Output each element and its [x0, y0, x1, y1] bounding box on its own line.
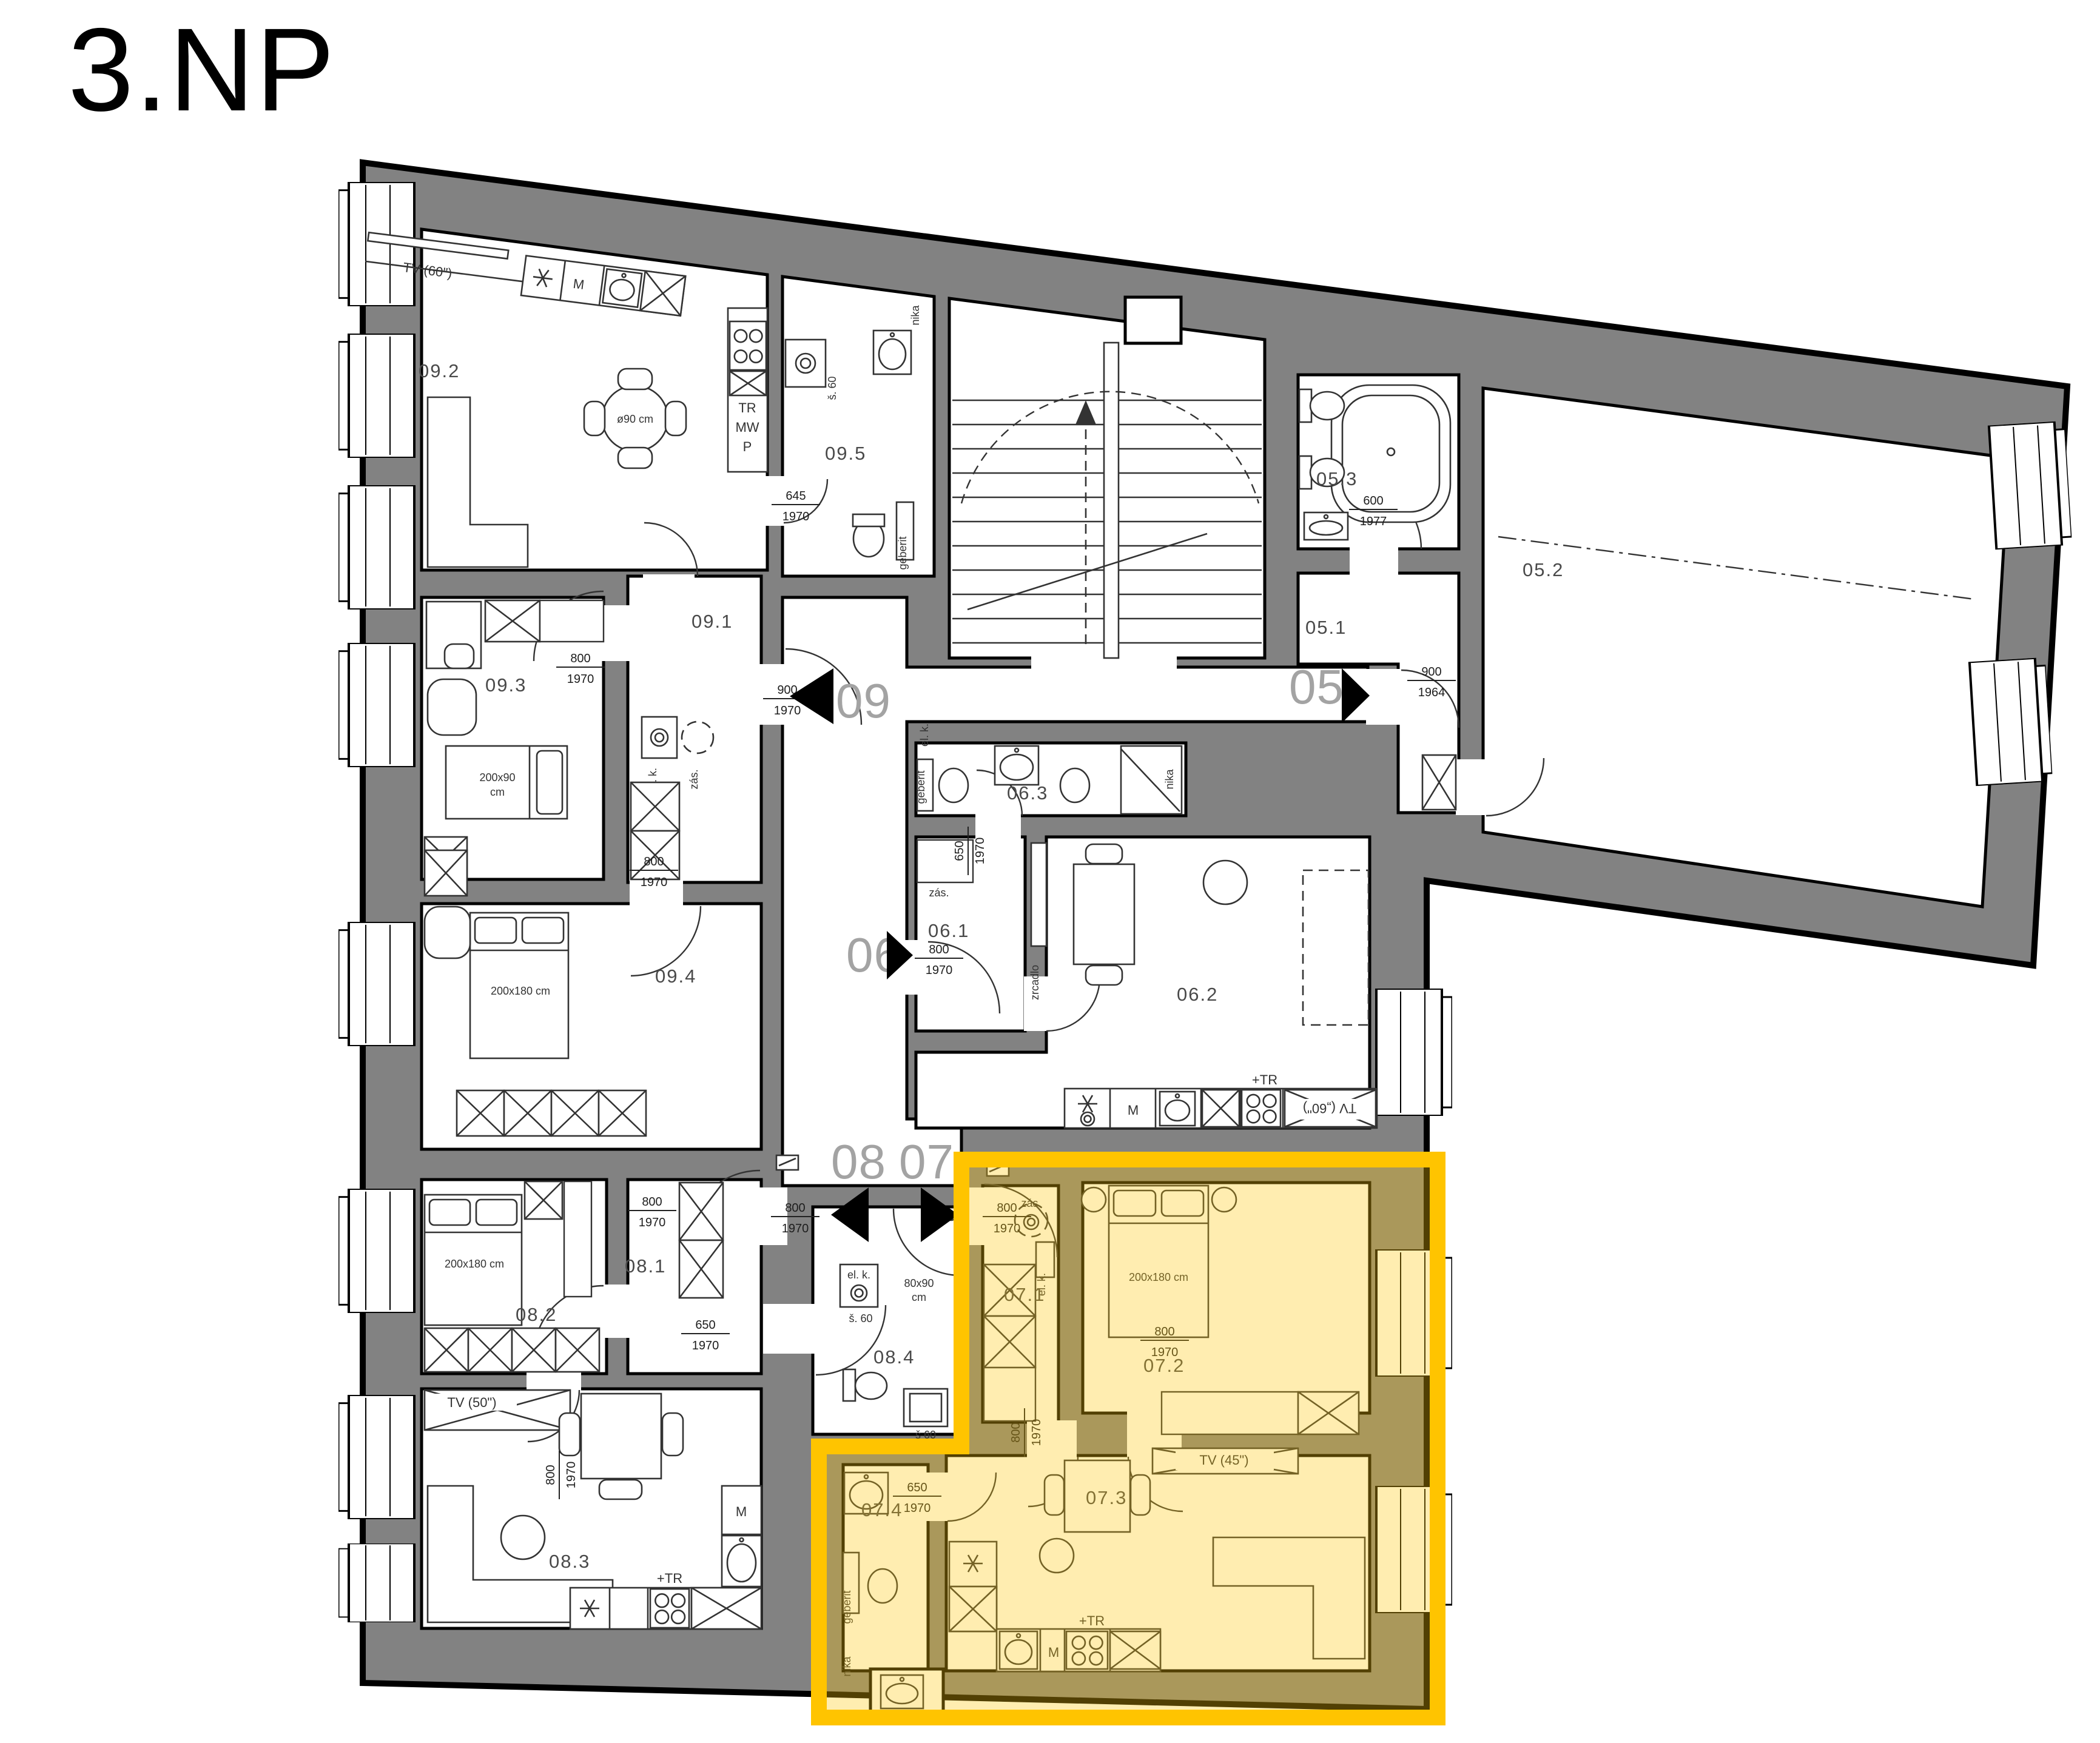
stove-tr-label: +TR: [1252, 1072, 1277, 1087]
wardrobe-rail: [564, 1181, 591, 1297]
svg-text:645: 645: [786, 489, 806, 503]
nika-label: nika: [909, 305, 921, 326]
toilet: [868, 1569, 897, 1603]
svg-text:1970: 1970: [692, 1339, 719, 1352]
room-label-09-4: 09.4: [655, 966, 696, 987]
svg-text:1970: 1970: [782, 510, 810, 523]
tall-cabinet-p: P: [743, 439, 752, 454]
stove: [730, 321, 766, 370]
svg-text:800: 800: [997, 1201, 1017, 1215]
dining-table: [581, 1394, 661, 1479]
side-table: [1040, 1539, 1074, 1573]
room-label-08-4: 08.4: [873, 1346, 915, 1368]
wardrobe-rail: [540, 600, 604, 642]
armchair: [1203, 861, 1247, 904]
svg-text:1970: 1970: [567, 673, 594, 686]
room-label-07-1: 07.1: [1004, 1284, 1045, 1305]
dining-table: [1074, 864, 1134, 964]
room-label-05-3: 05.3: [1316, 468, 1358, 489]
svg-text:cm: cm: [912, 1291, 926, 1303]
zrcadlo-label: zrcadlo: [1029, 965, 1041, 1000]
svg-text:cm: cm: [490, 786, 505, 798]
armchair: [425, 907, 470, 958]
svg-text:800: 800: [929, 943, 949, 956]
room-label-07-3: 07.3: [1086, 1487, 1127, 1508]
svg-text:800: 800: [1009, 1422, 1023, 1442]
stove-tr-label: +TR: [657, 1571, 682, 1586]
stove-tr-label: +TR: [1079, 1613, 1105, 1628]
toilet: [855, 1372, 887, 1399]
washer-label: š. 60: [849, 1312, 872, 1325]
svg-text:1970: 1970: [1030, 1419, 1043, 1446]
toilet: [1310, 392, 1344, 420]
el-k-label: el. k.: [847, 1269, 870, 1281]
room-label-08-1: 08.1: [625, 1255, 666, 1277]
svg-text:800: 800: [642, 1195, 662, 1209]
svg-text:1977: 1977: [1360, 515, 1387, 528]
svg-text:1964: 1964: [1418, 686, 1445, 699]
nightstand: [1082, 1187, 1106, 1212]
washer-label: š. 60: [826, 376, 838, 400]
geberit-label: geberit: [841, 1590, 853, 1624]
room-label-05-1: 05.1: [1305, 617, 1347, 638]
svg-text:800: 800: [785, 1201, 805, 1215]
nightstand: [1212, 1187, 1236, 1212]
washing-machine-icon: [796, 354, 815, 373]
zas-label: zás.: [1021, 1197, 1041, 1209]
bed-size-label: 200x180 cm: [491, 985, 550, 997]
svg-text:1970: 1970: [994, 1222, 1021, 1235]
room-label-07-4: 07.4: [861, 1499, 903, 1520]
svg-text:1970: 1970: [904, 1502, 931, 1515]
svg-text:650: 650: [953, 841, 966, 861]
svg-text:900: 900: [1421, 665, 1441, 679]
bed-size-label: 200x180 cm: [1129, 1271, 1188, 1283]
zas-label: zás.: [929, 887, 949, 899]
geberit-label: geberit: [897, 536, 909, 569]
microwave-label: M: [572, 276, 585, 292]
wardrobe-rail: [984, 1368, 1035, 1421]
svg-text:1970: 1970: [926, 964, 953, 977]
unit-label-05: 05: [1289, 660, 1344, 714]
microwave-label: M: [1048, 1645, 1059, 1660]
round-table-label: ø90 cm: [617, 413, 653, 425]
geberit-label: geberit: [915, 770, 927, 804]
floorplan-drawing: 3.NP: [0, 0, 2100, 1743]
svg-text:1970: 1970: [782, 1222, 809, 1235]
page-title: 3.NP: [68, 4, 336, 136]
room-label-09-1: 09.1: [692, 611, 733, 632]
double-bed: [1109, 1186, 1208, 1337]
room-label-09-2: 09.2: [419, 360, 460, 381]
wardrobe-rail: [1162, 1392, 1298, 1434]
svg-text:1970: 1970: [639, 1216, 666, 1229]
floorplan-page: 3.NP: [0, 0, 2100, 1743]
side-table: [501, 1516, 545, 1559]
svg-text:650: 650: [695, 1318, 715, 1332]
svg-text:1970: 1970: [1151, 1346, 1179, 1359]
microwave-label: M: [736, 1504, 747, 1519]
svg-text:800: 800: [1154, 1325, 1174, 1338]
svg-text:1970: 1970: [641, 876, 668, 889]
shower-size-label: 80x90: [904, 1277, 934, 1289]
svg-text:1970: 1970: [565, 1462, 578, 1489]
boiler-icon: [851, 1285, 867, 1301]
room-label-08-3: 08.3: [549, 1551, 590, 1572]
bed-size-label: 200x180 cm: [445, 1258, 504, 1270]
svg-text:800: 800: [644, 855, 664, 868]
room-label-06-3: 06.3: [1007, 782, 1048, 804]
toilet: [939, 768, 968, 802]
toilet: [1060, 768, 1089, 802]
tv45-label: TV (45"): [1199, 1452, 1248, 1468]
unit-label-07: 07: [899, 1135, 954, 1189]
zas-label: zás.: [688, 769, 700, 789]
bed-size-label: 200x90: [479, 771, 515, 784]
boiler-icon: [651, 729, 668, 746]
microwave-label: M: [1128, 1103, 1139, 1118]
svg-text:800: 800: [570, 652, 590, 665]
svg-text:1970: 1970: [974, 838, 987, 865]
svg-text:650: 650: [907, 1481, 927, 1494]
armchair: [428, 679, 476, 735]
room-label-09-5: 09.5: [825, 443, 866, 464]
room-label-06-1: 06.1: [928, 920, 969, 941]
room-label-05-2: 05.2: [1523, 559, 1564, 580]
svg-text:600: 600: [1363, 494, 1383, 508]
nika-label: nika: [1163, 769, 1176, 790]
room-05-2: [1483, 388, 2009, 907]
svg-text:800: 800: [544, 1465, 557, 1485]
room-label-06-2: 06.2: [1177, 984, 1218, 1005]
room-label-09-3: 09.3: [485, 674, 527, 696]
el-k-label: el. k.: [918, 724, 931, 747]
unit-label-08: 08: [831, 1135, 886, 1189]
stair-top-niche: [1125, 297, 1181, 343]
nika-label: nika: [841, 1656, 853, 1677]
tv60-mirror-label: TV („60"): [1303, 1101, 1356, 1116]
svg-text:1970: 1970: [774, 704, 801, 717]
stove: [1066, 1631, 1108, 1669]
tv50-label: TV (50"): [447, 1395, 496, 1410]
tall-cabinet-mw: MW: [735, 420, 759, 435]
room-label-08-2: 08.2: [516, 1304, 557, 1325]
unit-label-09: 09: [836, 674, 891, 728]
tall-cabinet-tr: TR: [738, 400, 756, 415]
